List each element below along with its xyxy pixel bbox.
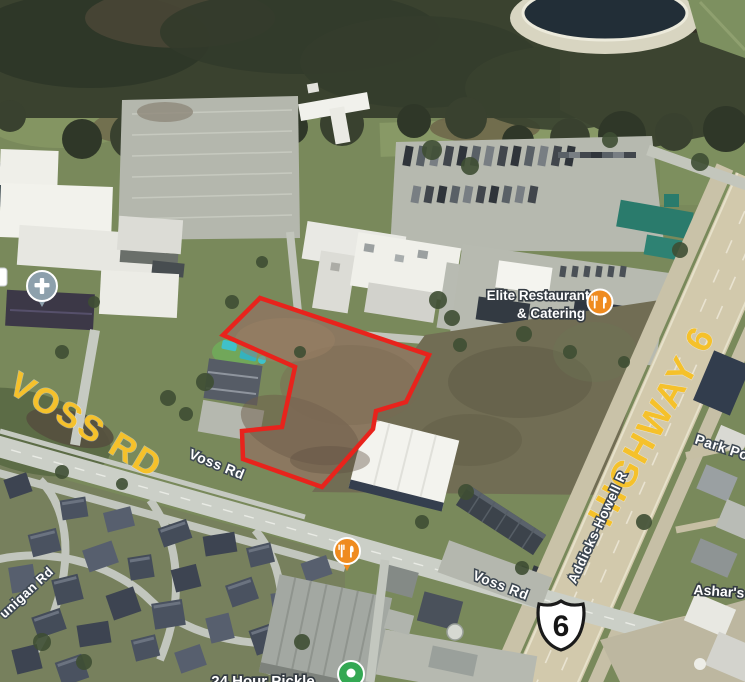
- restaurant-pin-elite[interactable]: [588, 290, 613, 315]
- green-poi-pin[interactable]: [338, 661, 364, 682]
- partial-poi-icon: [0, 268, 7, 286]
- poi-label-24-hour-pickle: 24 Hour Pickle: [211, 673, 314, 682]
- shield-route-number: 6: [553, 610, 570, 643]
- map-canvas[interactable]: VOSS RD HIGHWAY 6 Voss Rd Voss Rd Addick…: [0, 0, 745, 682]
- poi-label-elite-line1: Elite Restaurant: [487, 288, 590, 303]
- satellite-imagery: VOSS RD HIGHWAY 6 Voss Rd Voss Rd Addick…: [0, 0, 745, 682]
- poi-label-elite-line2: & Catering: [517, 306, 585, 321]
